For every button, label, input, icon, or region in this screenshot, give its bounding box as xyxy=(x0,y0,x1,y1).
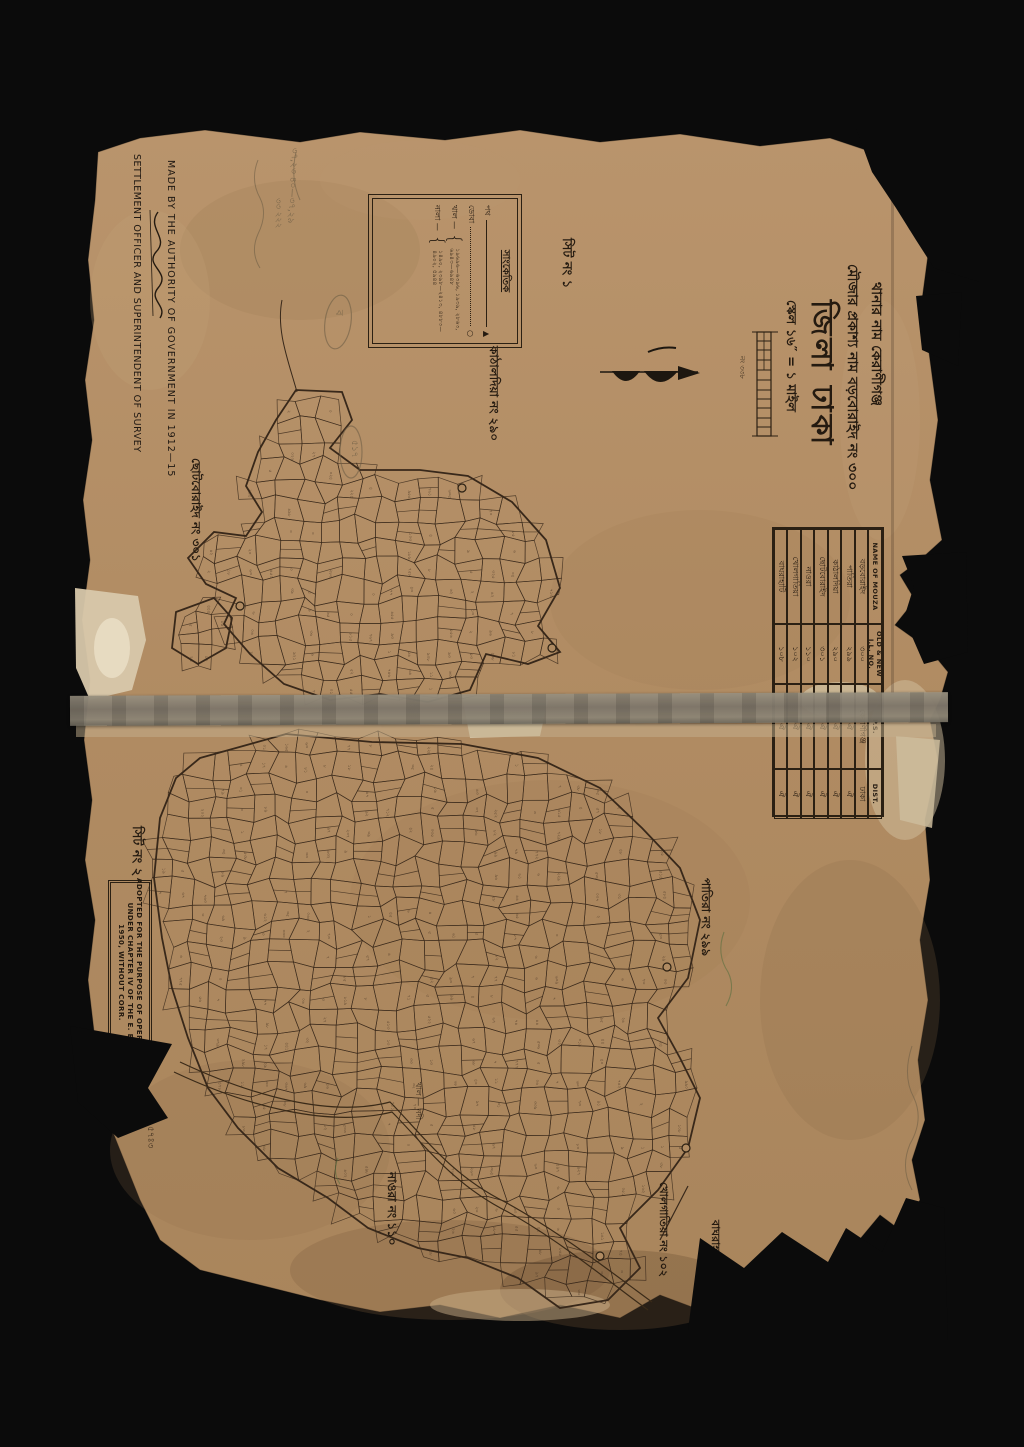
svg-text:২৯৪: ২৯৪ xyxy=(246,489,251,498)
svg-text:৩০: ৩০ xyxy=(264,1081,269,1087)
svg-text:৫০৩: ৫০৩ xyxy=(342,1124,347,1133)
svg-text:৭৪: ৭৪ xyxy=(513,1020,518,1026)
svg-text:৬৩: ৬৩ xyxy=(574,1081,579,1087)
svg-text:৫৩৮: ৫৩৮ xyxy=(242,852,247,861)
svg-text:০: ০ xyxy=(327,410,332,413)
authority-attribution-line: MADE BY THE AUTHORITY OF GOVERNMENT IN 1… xyxy=(165,160,176,477)
table-cell: ঐ xyxy=(788,769,802,819)
svg-text:৫৩: ৫৩ xyxy=(658,933,663,939)
scale-bar-note: নং ৩৩৮ xyxy=(736,356,748,379)
svg-text:১১: ১১ xyxy=(428,672,433,678)
svg-text:৪৩৮: ৪৩৮ xyxy=(489,652,494,661)
stamp-line: ADOPTED FOR THE PURPOSE OF OPERATION xyxy=(135,878,144,1067)
svg-text:৭৭৫: ৭৭৫ xyxy=(178,977,183,986)
svg-text:২৭: ২৭ xyxy=(310,452,315,458)
svg-text:৪: ৪ xyxy=(238,764,243,767)
svg-text:৫৩৬: ৫৩৬ xyxy=(535,1041,540,1050)
svg-text:৬১: ৬১ xyxy=(516,874,521,880)
svg-text:৬৩২: ৬৩২ xyxy=(325,850,330,859)
svg-text:৮১: ৮১ xyxy=(511,652,516,658)
table-cell: ঐ xyxy=(774,769,788,819)
svg-text:৭: ৭ xyxy=(509,612,514,615)
svg-text:৩৮: ৩৮ xyxy=(575,785,580,791)
svg-text:৭০: ৭০ xyxy=(488,510,493,516)
svg-text:৭৬৭: ৭৬৭ xyxy=(367,634,372,643)
svg-text:১০৮: ১০৮ xyxy=(676,1124,681,1133)
svg-text:৫: ৫ xyxy=(468,571,473,574)
svg-text:০: ০ xyxy=(553,934,558,937)
svg-text:৭: ৭ xyxy=(324,956,329,959)
svg-text:৬: ৬ xyxy=(555,1186,560,1189)
svg-text:৫: ৫ xyxy=(267,470,272,473)
svg-text:০৭: ০৭ xyxy=(473,807,478,813)
district-title: জিলা ঢাকা xyxy=(795,300,846,447)
svg-text:৫: ৫ xyxy=(535,1062,540,1065)
svg-text:৪: ৪ xyxy=(283,765,288,768)
svg-text:৭৫৮: ৭৫৮ xyxy=(407,568,412,577)
svg-text:৫: ৫ xyxy=(427,931,432,934)
svg-text:০১: ০১ xyxy=(238,787,243,793)
svg-text:১: ১ xyxy=(366,915,371,918)
svg-text:২: ২ xyxy=(595,915,600,918)
svg-text:৯৯০: ৯৯০ xyxy=(683,1080,688,1089)
svg-text:৩৬৪: ৩৬৪ xyxy=(488,1167,493,1176)
svg-text:০৬৪: ০৬৪ xyxy=(305,912,310,921)
svg-text:৪: ৪ xyxy=(368,487,373,490)
svg-text:৬৩৫: ৬৩৫ xyxy=(447,490,452,499)
svg-text:৬: ৬ xyxy=(494,1208,499,1211)
svg-text:৮১৫: ৮১৫ xyxy=(347,633,352,642)
svg-text:৯: ৯ xyxy=(619,1147,624,1150)
svg-text:৫৬: ৫৬ xyxy=(197,996,202,1002)
svg-text:৬৭: ৬৭ xyxy=(470,1038,475,1044)
svg-text:৭৭: ৭৭ xyxy=(262,1000,267,1006)
svg-text:৭৬৩: ৭৬৩ xyxy=(202,894,207,903)
svg-text:৯৬: ৯৬ xyxy=(473,830,478,836)
svg-text:৫: ৫ xyxy=(180,870,185,873)
svg-text:৩৫: ৩৫ xyxy=(409,764,414,770)
dotted-line-symbol xyxy=(470,227,471,326)
legend-item-nala: নালা — { ১৪৯০, ২৩৯৮—২৪১৩, ৪৮৮৩—৪৯০২, ৫৯৪… xyxy=(430,205,444,337)
svg-text:৮৯: ৮৯ xyxy=(219,872,224,878)
legend-item-path: পথ ▲ xyxy=(480,205,493,337)
svg-text:৭১: ৭১ xyxy=(406,995,411,1001)
svg-text:৪৩: ৪৩ xyxy=(474,789,479,795)
svg-text:১: ১ xyxy=(639,1147,644,1150)
legend-box: সাংকেতিক পথ ▲ ডোবা ○ খাল — { ১৯৬৯৬—৬৩৯৬,… xyxy=(372,198,518,344)
svg-text:৪৯৭: ৪৯৭ xyxy=(555,1164,560,1173)
svg-text:৭: ৭ xyxy=(386,1123,391,1126)
svg-text:৩৭৯: ৩৭৯ xyxy=(215,1038,220,1047)
svg-text:২৬: ২৬ xyxy=(450,1228,455,1234)
svg-text:২২৯: ২২৯ xyxy=(556,872,561,881)
svg-text:৪৫: ৪৫ xyxy=(388,912,393,918)
plot-number-list: ১৪৯০, ২৩৯৮—২৪১৩, ৪৮৮৩—৪৯০২, ৫৯৪৪ xyxy=(431,250,443,337)
svg-text:৫৪: ৫৪ xyxy=(406,651,411,657)
svg-text:৪৮: ৪৮ xyxy=(428,1250,433,1256)
svg-text:৭: ৭ xyxy=(215,998,220,1001)
svg-text:৮২: ৮২ xyxy=(492,830,497,836)
table-cell: বাঘরাহাটি xyxy=(774,529,788,624)
svg-text:৪৬: ৪৬ xyxy=(325,1083,330,1089)
svg-text:৬১: ৬১ xyxy=(450,933,455,939)
ink-annotation: ৫৭ঃ৩ xyxy=(143,1126,158,1148)
svg-text:৪৪৪: ৪৪৪ xyxy=(206,605,211,614)
svg-text:৭৪: ৭৪ xyxy=(618,1250,623,1256)
svg-text:৪২: ৪২ xyxy=(408,827,413,833)
svg-text:৪৪: ৪৪ xyxy=(536,1227,541,1233)
svg-text:০৬: ০৬ xyxy=(300,998,305,1004)
table-cell: ঢাকা xyxy=(855,769,869,819)
svg-text:৭: ৭ xyxy=(157,891,162,894)
svg-text:৮: ৮ xyxy=(322,765,327,768)
table-header: OLD & NEW J.L. NO. xyxy=(869,624,883,684)
svg-text:৫৫৬: ৫৫৬ xyxy=(448,629,453,638)
svg-text:১: ১ xyxy=(514,764,519,767)
table-cell: ১০৮ xyxy=(774,624,788,684)
svg-text:১৮: ১৮ xyxy=(346,765,351,771)
svg-text:৭৩: ৭৩ xyxy=(576,1100,581,1106)
svg-text:৩৩৯: ৩৩৯ xyxy=(532,1101,537,1110)
svg-text:২: ২ xyxy=(305,930,310,933)
svg-text:৭: ৭ xyxy=(554,1081,559,1084)
path-line-symbol xyxy=(486,220,487,327)
svg-text:১৭: ১৭ xyxy=(262,1044,267,1050)
svg-text:০০৭: ০০৭ xyxy=(594,893,599,902)
svg-text:৩৯: ৩৯ xyxy=(289,588,294,594)
svg-text:৯৬: ৯৬ xyxy=(488,630,493,636)
stamp-line: UNDER CHAPTER IV OF THE E. B. xyxy=(126,903,135,1043)
svg-text:৮৫: ৮৫ xyxy=(342,976,347,982)
svg-text:৮৯: ৮৯ xyxy=(432,787,437,793)
svg-text:৯২৭: ৯২৭ xyxy=(576,1167,581,1176)
svg-text:৭৭২: ৭৭২ xyxy=(534,851,539,860)
table-cell: নাওরা xyxy=(801,529,815,624)
svg-text:৩৩: ৩৩ xyxy=(304,852,309,858)
svg-text:২৯: ২৯ xyxy=(660,956,665,962)
thana-name-line: থানার নাম কেরাণীগঞ্জ xyxy=(864,282,888,406)
table-cell: ১১০ xyxy=(801,624,815,684)
svg-text:৮০: ৮০ xyxy=(575,1144,580,1150)
svg-text:৬: ৬ xyxy=(405,910,410,913)
svg-text:৩২৫: ৩২৫ xyxy=(490,570,495,579)
svg-text:২: ২ xyxy=(615,806,620,809)
triangle-marker-icon: ▲ xyxy=(484,331,490,337)
svg-text:৬৭: ৬৭ xyxy=(490,1143,495,1149)
table-cell: ঐ xyxy=(842,769,856,819)
stamp-sub-text: SETTLEMENT OFFICE xyxy=(115,1068,122,1130)
svg-text:৪২: ৪২ xyxy=(208,550,213,556)
svg-text:২৯: ২৯ xyxy=(262,1062,267,1068)
adoption-stamp: ADOPTED FOR THE PURPOSE OF OPERATION UND… xyxy=(108,880,152,1065)
svg-text:৪৮: ৪৮ xyxy=(537,1249,542,1255)
svg-text:৫৭: ৫৭ xyxy=(364,955,369,961)
svg-text:৪৮: ৪৮ xyxy=(618,849,623,855)
mouza-label-kholgatia: খোলগাতিয়া নং ১০২ xyxy=(653,1182,672,1277)
svg-text:৭৯: ৭৯ xyxy=(513,848,518,854)
svg-text:৭৩: ৭৩ xyxy=(325,933,330,939)
svg-text:৭: ৭ xyxy=(557,785,562,788)
svg-text:৬৭: ৬৭ xyxy=(180,892,185,898)
table-cell: ঐ xyxy=(801,769,815,819)
svg-text:০: ০ xyxy=(348,613,353,616)
svg-text:০৮: ০৮ xyxy=(282,1101,287,1107)
svg-text:১৩: ১৩ xyxy=(469,609,474,615)
svg-text:২৩: ২৩ xyxy=(218,936,223,942)
svg-text:০১৯: ০১৯ xyxy=(577,1038,582,1047)
svg-text:০: ০ xyxy=(217,978,222,981)
svg-text:৬: ৬ xyxy=(536,873,541,876)
table-header: NAME OF MOUZA xyxy=(869,529,883,624)
svg-text:৭৭: ৭৭ xyxy=(388,590,393,596)
svg-text:১৯: ১৯ xyxy=(160,868,165,874)
stamp-line: 1950, WITHOUT CORR. xyxy=(117,924,126,1021)
mouza-label-bagrahati: বাঘরাহাটি xyxy=(705,1220,724,1263)
svg-text:৩৫: ৩৫ xyxy=(285,911,290,917)
svg-text:১: ১ xyxy=(239,831,244,834)
scale-bar xyxy=(752,332,778,436)
svg-text:৪৪: ৪৪ xyxy=(534,1020,539,1026)
table-header: DIST. xyxy=(869,769,883,819)
legend-label: পথ xyxy=(480,205,493,216)
legend-label: নালা — xyxy=(431,205,444,231)
svg-text:৭৩: ৭৩ xyxy=(641,979,646,985)
table-cell: ২৯৯ xyxy=(842,624,856,684)
repair-tape-band xyxy=(70,692,948,726)
svg-text:৪৫৫: ৪৫৫ xyxy=(389,611,394,620)
svg-text:৭৯: ৭৯ xyxy=(220,789,225,795)
svg-text:৬৩: ৬৩ xyxy=(303,742,308,748)
svg-text:৪: ৪ xyxy=(427,534,432,537)
svg-text:৬: ৬ xyxy=(533,977,538,980)
svg-text:১: ১ xyxy=(427,688,432,691)
pencil-annotation-1: ৩৭,২৩ ৪০—৩৭,২৯ xyxy=(283,147,302,224)
table-cell: ৩০১ xyxy=(815,624,829,684)
svg-text:৬০৯: ৬০৯ xyxy=(553,976,558,985)
svg-text:২৯: ২৯ xyxy=(188,656,193,662)
settlement-officer-line: SETTLEMENT OFFICER AND SUPERINTENDENT OF… xyxy=(131,154,142,453)
svg-text:১৩: ১৩ xyxy=(428,1059,433,1065)
svg-text:৫৭: ৫৭ xyxy=(594,807,599,813)
svg-text:৬: ৬ xyxy=(512,550,517,553)
svg-text:৪৪১: ৪৪১ xyxy=(283,1042,288,1051)
svg-text:২৮৬: ২৮৬ xyxy=(328,570,333,579)
svg-text:৪: ৪ xyxy=(469,996,474,999)
svg-text:০৬: ০৬ xyxy=(534,1079,539,1085)
brace-glyph: { xyxy=(430,235,444,246)
svg-text:২: ২ xyxy=(285,410,290,413)
svg-text:৯৭: ৯৭ xyxy=(534,1272,539,1278)
svg-text:৯৩: ৯৩ xyxy=(447,977,452,983)
svg-text:৭৭: ৭৭ xyxy=(493,976,498,982)
svg-text:৬৩৬: ৬৩৬ xyxy=(447,671,452,680)
legend-item-khal: খাল — { ১৯৬৯৬—৬৩৯৬, ১৯৩৯, ২৮৬৩, ৬৯৪৩—৬৯৪… xyxy=(447,205,461,337)
svg-text:২২৪: ২২৪ xyxy=(348,490,353,499)
svg-text:৩: ৩ xyxy=(619,1270,624,1273)
svg-text:৬১২: ৬১২ xyxy=(262,913,267,922)
svg-text:২৪: ২৪ xyxy=(657,1041,662,1047)
svg-text:৭৪২: ৭৪২ xyxy=(616,1080,621,1089)
svg-text:৩৪: ৩৪ xyxy=(221,849,226,855)
svg-text:২৪: ২৪ xyxy=(620,1017,625,1023)
svg-text:৪৪: ৪৪ xyxy=(600,1039,605,1045)
table-cell: ১০২ xyxy=(788,624,802,684)
svg-text:৩৬: ৩৬ xyxy=(308,630,313,636)
mouza-label-naora: নাওরা নং ১১০ xyxy=(380,1172,400,1246)
svg-text:৫৩৮: ৫৩৮ xyxy=(593,872,598,881)
green-pencil-scribbles xyxy=(335,932,731,1184)
legend-item-doba: ডোবা ○ xyxy=(464,205,477,337)
boundary-extension-line xyxy=(280,300,297,392)
svg-text:৪৯৮: ৪৯৮ xyxy=(286,508,291,517)
fold-line xyxy=(891,150,894,695)
svg-text:০৫: ০৫ xyxy=(595,789,600,795)
svg-text:৫: ৫ xyxy=(677,1147,682,1150)
plot-number-list: ১৯৬৯৬—৬৩৯৬, ১৯৩৯, ২৮৬৩, ৬৯৪৩—৬৯৪৮ xyxy=(448,249,460,337)
svg-text:৮: ৮ xyxy=(488,995,493,998)
svg-text:৭: ৭ xyxy=(551,997,556,1000)
svg-text:৮২: ৮২ xyxy=(203,656,208,662)
svg-text:৬১৫: ৬১৫ xyxy=(556,809,561,818)
svg-text:৫২২: ৫২২ xyxy=(426,1016,431,1025)
svg-text:২৭: ২৭ xyxy=(321,1017,326,1023)
svg-text:৫৩: ৫৩ xyxy=(468,653,473,659)
svg-text:২: ২ xyxy=(638,1103,643,1106)
svg-text:৫: ৫ xyxy=(187,624,192,627)
svg-text:৯৫৪: ৯৫৪ xyxy=(406,490,411,499)
table-cell: ২৯০ xyxy=(828,624,842,684)
svg-text:৭: ৭ xyxy=(492,1061,497,1064)
svg-text:৮: ৮ xyxy=(363,998,368,1001)
svg-text:৩: ৩ xyxy=(200,913,205,916)
svg-text:৬৮: ৬৮ xyxy=(261,1146,266,1152)
svg-text:২: ২ xyxy=(468,631,473,634)
svg-text:২০: ২০ xyxy=(247,549,252,555)
mouza-label-kathaldia: কাঠালদিয়া নং ২৯০ xyxy=(482,346,502,441)
svg-text:০: ০ xyxy=(303,790,308,793)
svg-text:৮৪৮: ৮৪৮ xyxy=(557,1248,562,1257)
svg-text:০৩৫: ০৩৫ xyxy=(429,829,434,838)
svg-text:২৪: ২৪ xyxy=(429,765,434,771)
svg-text:৯৩: ৯৩ xyxy=(389,633,394,639)
brace-glyph: { xyxy=(447,233,461,244)
svg-text:৯৩: ৯৩ xyxy=(446,652,451,658)
svg-text:৮৭: ৮৭ xyxy=(512,934,517,940)
svg-text:৯: ৯ xyxy=(241,937,246,940)
table-cell: ঐ xyxy=(815,769,829,819)
svg-text:১: ১ xyxy=(386,651,391,654)
svg-text:৮৫: ৮৫ xyxy=(219,621,224,627)
svg-text:৪৩: ৪৩ xyxy=(409,586,414,592)
svg-text:১১: ১১ xyxy=(493,1078,498,1084)
svg-text:৬০: ৬০ xyxy=(532,1164,537,1170)
svg-text:১৬২: ১৬২ xyxy=(640,1185,645,1194)
svg-text:০৩: ০৩ xyxy=(662,979,667,985)
legend-heading: সাংকেতিক xyxy=(496,205,513,337)
legend-label: ডোবা xyxy=(464,205,477,223)
svg-text:৪২: ৪২ xyxy=(489,592,494,598)
svg-text:৯৫: ৯৫ xyxy=(598,1017,603,1023)
mouza-label-chhotoboraid: ছোটবোরাইদ নং ৩০১ xyxy=(184,458,204,562)
svg-text:৮২: ৮২ xyxy=(322,1125,327,1131)
svg-text:৫: ৫ xyxy=(429,1124,434,1127)
svg-text:৪: ৪ xyxy=(306,591,311,594)
svg-text:৮৮৭: ৮৮৭ xyxy=(491,1226,496,1235)
svg-text:৩৬৭: ৩৬৭ xyxy=(283,1082,288,1091)
svg-text:০: ০ xyxy=(555,1207,560,1210)
svg-text:২৬০: ২৬০ xyxy=(469,1167,474,1176)
svg-text:৫৮: ৫৮ xyxy=(490,896,495,902)
svg-text:৩৯: ৩৯ xyxy=(365,831,370,837)
svg-text:৬৫: ৬৫ xyxy=(514,913,519,919)
svg-text:৭৬৩: ৭৬৩ xyxy=(449,1168,454,1177)
svg-text:৭৭৭: ৭৭৭ xyxy=(513,1060,518,1069)
survey-station-circles xyxy=(236,484,690,1260)
svg-text:৯: ৯ xyxy=(465,550,470,553)
svg-text:৮: ৮ xyxy=(367,744,372,747)
svg-text:৪০: ৪০ xyxy=(473,1079,478,1085)
svg-text:৩৮: ৩৮ xyxy=(658,1163,663,1169)
svg-text:৯৯: ৯৯ xyxy=(449,995,454,1001)
svg-text:৯২: ৯২ xyxy=(363,811,368,817)
svg-text:০১: ০১ xyxy=(261,744,266,750)
svg-text:৯: ৯ xyxy=(343,850,348,853)
svg-text:৮: ৮ xyxy=(426,569,431,572)
svg-text:১৪১: ১৪১ xyxy=(599,1232,604,1241)
svg-text:৪: ৪ xyxy=(427,912,432,915)
svg-text:৬৯: ৬৯ xyxy=(220,915,225,921)
svg-text:৫২: ৫২ xyxy=(349,669,354,675)
svg-text:২৫২: ২৫২ xyxy=(492,809,497,818)
svg-text:৬২: ৬২ xyxy=(448,589,453,595)
svg-text:৬: ৬ xyxy=(178,955,183,958)
svg-text:৭২৯: ৭২৯ xyxy=(556,831,561,840)
fold-light-streak xyxy=(76,724,936,737)
svg-text:৫: ৫ xyxy=(430,807,435,810)
svg-text:০: ০ xyxy=(405,1144,410,1147)
svg-text:১৭: ১৭ xyxy=(260,762,265,768)
svg-text:৮১: ৮১ xyxy=(303,767,308,773)
svg-text:৮৩: ৮৩ xyxy=(240,1126,245,1132)
svg-text:৬: ৬ xyxy=(250,612,255,615)
svg-text:৩৩: ৩৩ xyxy=(408,1058,413,1064)
svg-text:৮০: ৮০ xyxy=(249,651,254,657)
svg-text:৭১২: ৭১২ xyxy=(385,808,390,817)
svg-text:৫: ৫ xyxy=(473,932,478,935)
svg-text:২৫: ২৫ xyxy=(659,850,664,856)
svg-text:০২২: ০২২ xyxy=(289,452,294,461)
svg-text:১১: ১১ xyxy=(239,1081,244,1087)
svg-text:৪৫০: ৪৫০ xyxy=(268,570,273,579)
svg-text:৬: ৬ xyxy=(619,978,624,981)
legend-label: খাল — xyxy=(448,205,461,229)
svg-text:০৪: ০৪ xyxy=(509,572,514,578)
svg-text:৭৬১: ৭৬১ xyxy=(427,488,432,497)
svg-text:০: ০ xyxy=(310,532,315,535)
svg-text:৯১: ৯১ xyxy=(596,1101,601,1107)
svg-text:৭৪৬: ৭৪৬ xyxy=(386,669,391,678)
svg-text:১৮: ১৮ xyxy=(225,570,230,576)
svg-text:৩১: ৩১ xyxy=(495,1102,500,1108)
svg-text:৪০: ৪০ xyxy=(598,1059,603,1065)
circle-marker-icon: ○ xyxy=(468,330,474,337)
mouza-index-table: NAME OF MOUZA OLD & NEW J.L. NO. P.S. DI… xyxy=(772,527,884,817)
svg-text:২: ২ xyxy=(510,1274,515,1277)
svg-text:৩২: ৩২ xyxy=(556,1039,561,1045)
svg-text:৩৩: ৩৩ xyxy=(575,1290,580,1296)
svg-text:৫৯৮: ৫৯৮ xyxy=(363,1166,368,1175)
svg-text:০৫১: ০৫১ xyxy=(620,1187,625,1196)
